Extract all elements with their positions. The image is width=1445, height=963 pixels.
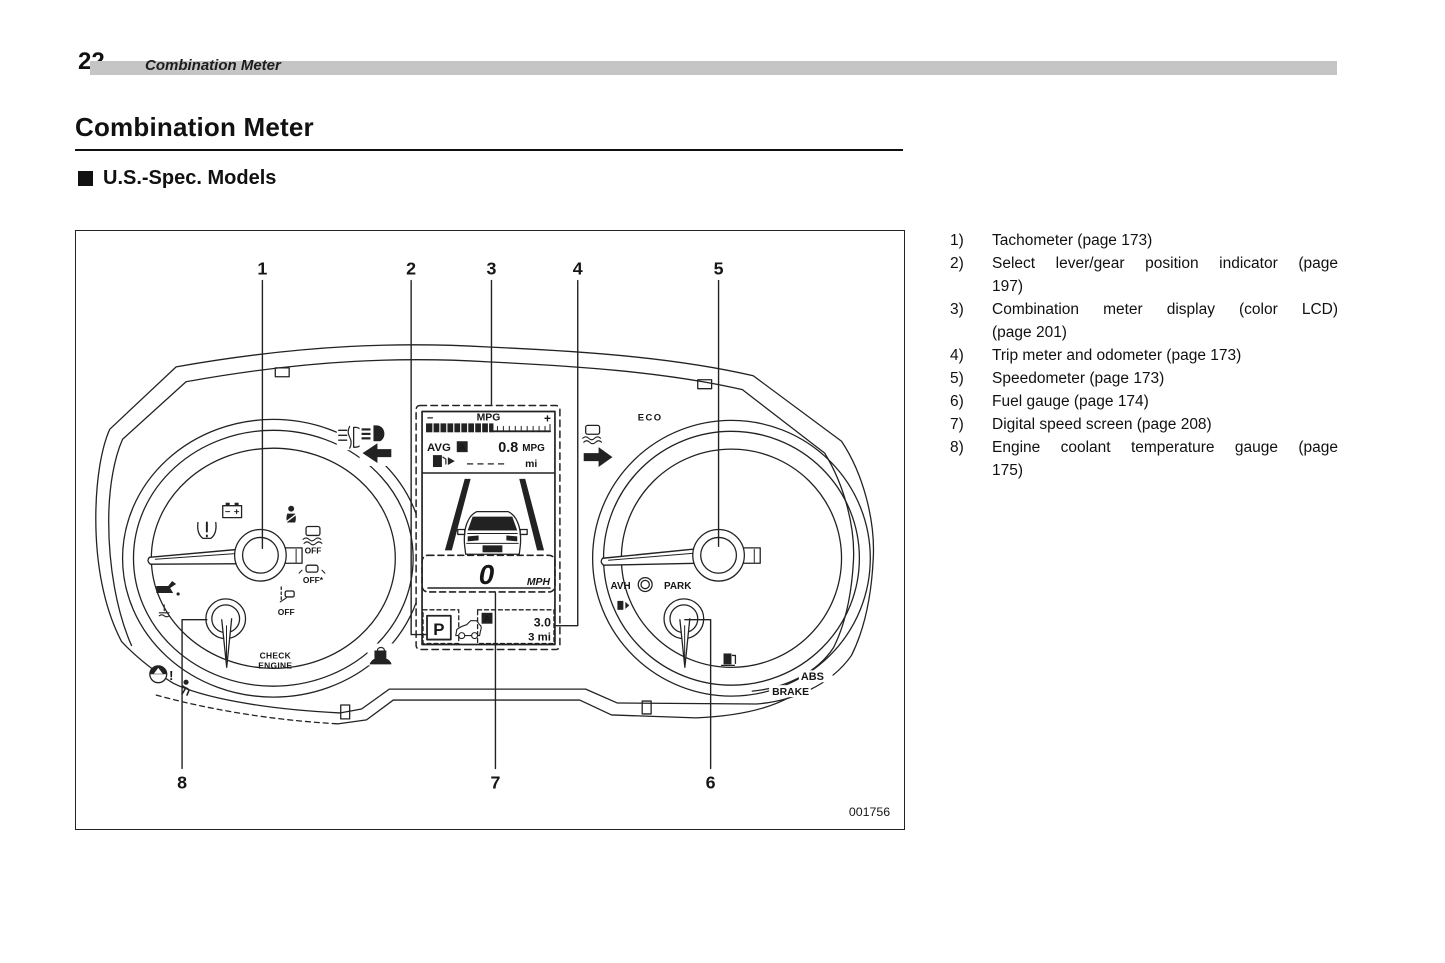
- fuel-gauge: [664, 599, 704, 667]
- coolant-low-icon: [159, 605, 169, 617]
- legend-num: 2): [950, 252, 992, 298]
- svg-text:AVG: AVG: [427, 442, 451, 454]
- vdc-off-icon: [303, 527, 322, 545]
- svg-text:ENGINE: ENGINE: [258, 660, 292, 670]
- svg-text:– – – –: – – – –: [467, 456, 505, 470]
- battery-warning-icon: [223, 503, 242, 518]
- legend-text: Engine coolant temperature gauge (page: [992, 436, 1338, 459]
- legend-text: Fuel gauge (page 174): [992, 390, 1338, 413]
- callout-7: 7: [490, 772, 500, 792]
- svg-text:ECO: ECO: [638, 411, 663, 422]
- legend-text: Digital speed screen (page 208): [992, 413, 1338, 436]
- legend-text: Speedometer (page 173): [992, 367, 1338, 390]
- svg-text:MPH: MPH: [527, 577, 551, 588]
- svg-text:3 mi: 3 mi: [528, 632, 551, 644]
- tpms-warning-icon: [198, 523, 216, 539]
- callout-4: 4: [573, 259, 583, 279]
- check-engine-label: CHECK ENGINE: [258, 650, 292, 670]
- legend-text: 197): [992, 275, 1338, 298]
- steering-warning-icon: !: [150, 666, 174, 683]
- legend-num: 4): [950, 344, 992, 367]
- fuel-door-icon: [617, 601, 629, 610]
- svg-text:OFF: OFF: [305, 545, 322, 555]
- abs-label: ABS: [799, 670, 833, 683]
- legend-item-7: 7) Digital speed screen (page 208): [950, 413, 1338, 436]
- legend-item-2: 2) Select lever/gear position indicator …: [950, 252, 1338, 298]
- vdc-indicator-icon: [581, 422, 617, 446]
- svg-text:PARK: PARK: [664, 581, 692, 592]
- cluster-diagram: CHECK ENGINE !: [76, 231, 901, 826]
- svg-text:3.0: 3.0: [534, 616, 551, 630]
- legend-item-3: 3) Combination meter display (color LCD)…: [950, 298, 1338, 344]
- svg-text:CHECK: CHECK: [260, 650, 291, 660]
- svg-text:0.8: 0.8: [498, 440, 518, 456]
- svg-text:0: 0: [479, 559, 495, 590]
- callout-5: 5: [714, 259, 724, 279]
- traction-off-icon: [299, 565, 325, 573]
- security-indicator-icon: [368, 644, 394, 666]
- legend-text: Combination meter display (color LCD): [992, 298, 1338, 321]
- legend-text: Tachometer (page 173): [992, 229, 1338, 252]
- callout-1: 1: [257, 259, 267, 279]
- eco-label: ECO: [638, 411, 663, 422]
- combination-meter-figure: CHECK ENGINE !: [75, 230, 905, 830]
- legend-item-1: 1) Tachometer (page 173): [950, 229, 1338, 252]
- svg-text:OFF: OFF: [278, 607, 295, 617]
- legend-text: 175): [992, 459, 1338, 482]
- high-beam-icon: [360, 422, 390, 444]
- figure-legend: 1) Tachometer (page 173) 2) Select lever…: [950, 229, 1338, 482]
- svg-text:A: A: [459, 442, 465, 452]
- legend-num: 7): [950, 413, 992, 436]
- svg-text:AVH: AVH: [610, 581, 630, 592]
- figure-code: 001756: [849, 805, 890, 819]
- legend-item-8: 8) Engine coolant temperature gauge (pag…: [950, 436, 1338, 482]
- coolant-temp-gauge: [206, 599, 246, 667]
- legend-num: 5): [950, 367, 992, 390]
- callout-8: 8: [177, 772, 187, 792]
- left-turn-signal-icon: [360, 441, 394, 466]
- page-title: Combination Meter: [75, 112, 314, 143]
- legend-text: Select lever/gear position indicator (pa…: [992, 252, 1338, 275]
- subsection-label: U.S.-Spec. Models: [103, 167, 276, 190]
- right-turn-signal-icon: [581, 445, 617, 470]
- subsection-heading: U.S.-Spec. Models: [78, 167, 276, 190]
- seatbelt-warning-icon: [285, 506, 297, 523]
- svg-text:+: +: [544, 411, 551, 425]
- oil-pressure-icon: [156, 581, 179, 595]
- legend-num: 1): [950, 229, 992, 252]
- speedometer-needle: [601, 529, 760, 581]
- callout-2: 2: [406, 259, 416, 279]
- legend-num: 3): [950, 298, 992, 344]
- svg-text:mi: mi: [525, 459, 537, 470]
- callout-3: 3: [487, 259, 497, 279]
- svg-text:MPG: MPG: [477, 412, 501, 423]
- legend-item-6: 6) Fuel gauge (page 174): [950, 390, 1338, 413]
- legend-num: 6): [950, 390, 992, 413]
- callout-6: 6: [706, 772, 716, 792]
- svg-text:MPG: MPG: [522, 443, 545, 454]
- svg-text:OFF*: OFF*: [303, 575, 324, 585]
- brake-label: BRAKE: [769, 685, 811, 698]
- legend-num: 8): [950, 436, 992, 482]
- svg-text:!: !: [169, 668, 173, 683]
- title-rule: [75, 149, 903, 151]
- svg-text:BRAKE: BRAKE: [772, 687, 809, 698]
- square-bullet-icon: [78, 171, 93, 186]
- lcd-display: − MPG + AVG A 0.8 MPG – – –: [416, 406, 560, 650]
- svg-text:P: P: [433, 620, 444, 639]
- avh-park-indicator: AVH PARK: [610, 578, 692, 592]
- housing-tab: [275, 368, 289, 377]
- running-header: Combination Meter: [145, 57, 281, 74]
- svg-text:−: −: [427, 412, 433, 424]
- legend-text: Trip meter and odometer (page 173): [992, 344, 1338, 367]
- legend-text: (page 201): [992, 321, 1338, 344]
- legend-item-5: 5) Speedometer (page 173): [950, 367, 1338, 390]
- fuel-pump-icon: [722, 653, 736, 665]
- svg-text:A: A: [484, 614, 490, 624]
- svg-text:ABS: ABS: [801, 671, 824, 683]
- lane-departure-off-icon: [280, 587, 294, 602]
- legend-item-4: 4) Trip meter and odometer (page 173): [950, 344, 1338, 367]
- tachometer-needle: [148, 529, 302, 581]
